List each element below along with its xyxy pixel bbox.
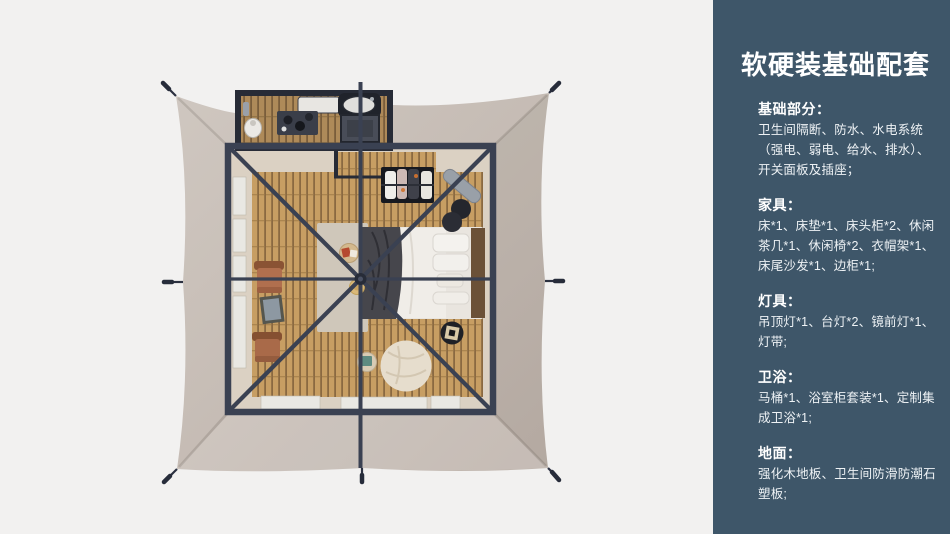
section-heading: 基础部分： bbox=[758, 98, 936, 120]
tent-top-view-render bbox=[0, 0, 713, 534]
spec-sections: 基础部分： 卫生间隔断、防水、水电系统（强电、弱电、给水、排水）、开关面板及插座… bbox=[758, 98, 936, 504]
pillow bbox=[433, 234, 469, 252]
section-basics: 基础部分： 卫生间隔断、防水、水电系统（强电、弱电、给水、排水）、开关面板及插座… bbox=[758, 98, 936, 180]
armchair bbox=[254, 261, 284, 293]
headboard bbox=[471, 228, 485, 318]
section-lighting: 灯具： 吊顶灯*1、台灯*2、镜前灯*1、灯带; bbox=[758, 290, 936, 352]
section-heading: 卫浴： bbox=[758, 366, 936, 388]
section-body: 马桶*1、浴室柜套装*1、定制集成卫浴*1; bbox=[758, 388, 936, 428]
skylight bbox=[298, 97, 340, 113]
section-body: 强化木地板、卫生间防滑防潮石塑板; bbox=[758, 464, 936, 504]
section-furniture: 家具： 床*1、床垫*1、床头柜*2、休闲茶几*1、休闲椅*2、衣帽架*1、床尾… bbox=[758, 194, 936, 276]
window-panels-left bbox=[233, 177, 246, 368]
clothes-rack bbox=[381, 167, 434, 203]
bed bbox=[362, 227, 485, 319]
tray-table bbox=[441, 322, 464, 345]
section-body: 卫生间隔断、防水、水电系统（强电、弱电、给水、排水）、开关面板及插座； bbox=[758, 120, 936, 180]
section-heading: 地面： bbox=[758, 442, 936, 464]
section-heading: 家具： bbox=[758, 194, 936, 216]
stool bbox=[442, 212, 462, 232]
spec-panel: 软硬装基础配套 基础部分： 卫生间隔断、防水、水电系统（强电、弱电、给水、排水）… bbox=[713, 0, 950, 534]
section-heading: 灯具： bbox=[758, 290, 936, 312]
canvas-shadow bbox=[493, 93, 549, 468]
bolster bbox=[433, 292, 469, 304]
armchair bbox=[252, 332, 282, 362]
page: 软硬装基础配套 基础部分： 卫生间隔断、防水、水电系统（强电、弱电、给水、排水）… bbox=[0, 0, 950, 534]
pillow bbox=[433, 254, 469, 271]
section-bathroom: 卫浴： 马桶*1、浴室柜套装*1、定制集成卫浴*1; bbox=[758, 366, 936, 428]
section-body: 吊顶灯*1、台灯*2、镜前灯*1、灯带; bbox=[758, 312, 936, 352]
wall-mirror bbox=[259, 295, 284, 324]
section-body: 床*1、床垫*1、床头柜*2、休闲茶几*1、休闲椅*2、衣帽架*1、床尾沙发*1… bbox=[758, 216, 936, 276]
section-flooring: 地面： 强化木地板、卫生间防滑防潮石塑板; bbox=[758, 442, 936, 504]
vanity-counter bbox=[277, 111, 318, 135]
panel-title: 软硬装基础配套 bbox=[741, 50, 950, 80]
